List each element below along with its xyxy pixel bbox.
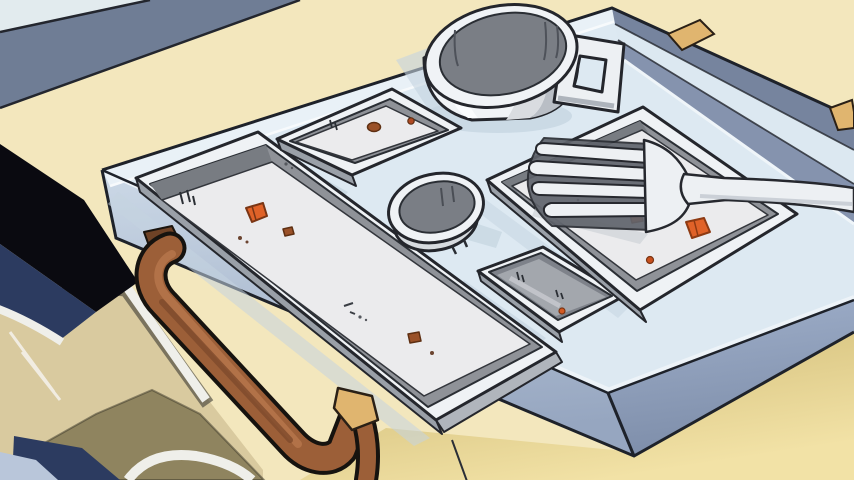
- food-crumb-dot: [408, 118, 414, 124]
- food-crumb: [408, 332, 421, 343]
- crumb-dot: [430, 351, 434, 355]
- floor-speck: [365, 319, 367, 321]
- anime-frame-lunch-tray: [0, 0, 854, 480]
- food-crumb-dot: [647, 257, 654, 264]
- floor-speck: [358, 315, 361, 318]
- food-crumb-dot: [559, 308, 565, 314]
- floor-speck: [291, 167, 293, 169]
- crumb-dot: [238, 236, 242, 240]
- fork-tine-4: [544, 203, 650, 217]
- floor-speck: [284, 162, 287, 165]
- food-crumb-oval: [368, 123, 381, 132]
- crumb-dot: [246, 241, 249, 244]
- fork-tine-3: [532, 182, 649, 198]
- food-crumb-small: [283, 227, 294, 236]
